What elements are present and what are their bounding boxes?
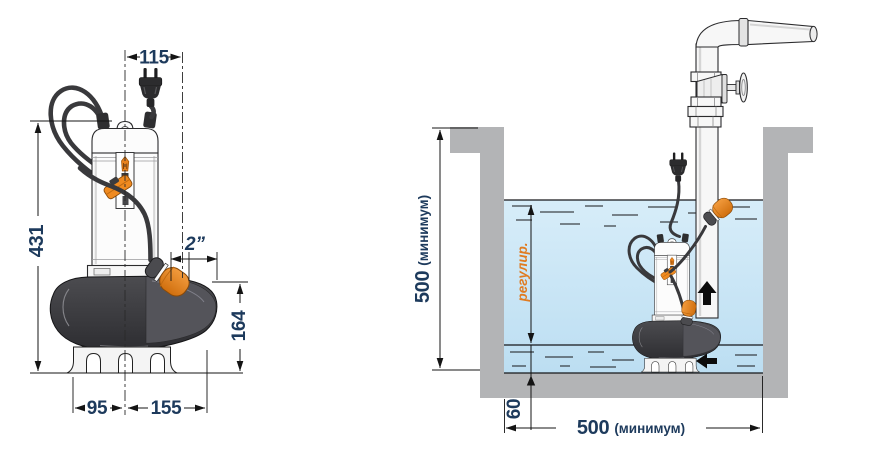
valve-handwheel [740, 73, 748, 102]
dim-431-label: 431 [26, 225, 48, 258]
power-plug-icon [670, 153, 687, 182]
dim-width-label: 500(минимум) [577, 417, 685, 439]
dim-plug-offset: 115 [127, 47, 181, 69]
plug-cord [151, 106, 154, 117]
pipe-union [688, 107, 723, 128]
diagram-canvas: 115 431 2” 164 [0, 0, 885, 460]
pipe-open-end [810, 26, 817, 41]
power-plug-icon [139, 68, 162, 107]
dim-164-label: 164 [229, 310, 250, 342]
gate-valve [691, 72, 747, 107]
pump-technical-diagram: 115 431 2” 164 [0, 0, 885, 460]
outlet-pipe [748, 21, 813, 45]
dim-115-label: 115 [139, 48, 169, 69]
dimensional-view: 115 431 2” 164 [26, 47, 250, 419]
dim-95-label: 95 [87, 398, 108, 419]
dim-155-label: 155 [151, 398, 183, 419]
pipe-elbow [696, 21, 742, 48]
level-range-label: регулир. [515, 242, 530, 302]
water [504, 200, 763, 373]
dim-60-label: 60 [504, 399, 525, 420]
dim-casing-height: 164 [212, 282, 250, 371]
valve-stem [727, 85, 736, 91]
dim-pit-depth: 500(минимум) [412, 128, 480, 370]
dim-depth-label: 500(минимум) [412, 195, 434, 303]
elbow-collar [739, 19, 748, 47]
installation-view: 500(минимум) регулир. 60 500(минимум) [412, 19, 817, 440]
dim-2in-label: 2” [184, 234, 206, 255]
